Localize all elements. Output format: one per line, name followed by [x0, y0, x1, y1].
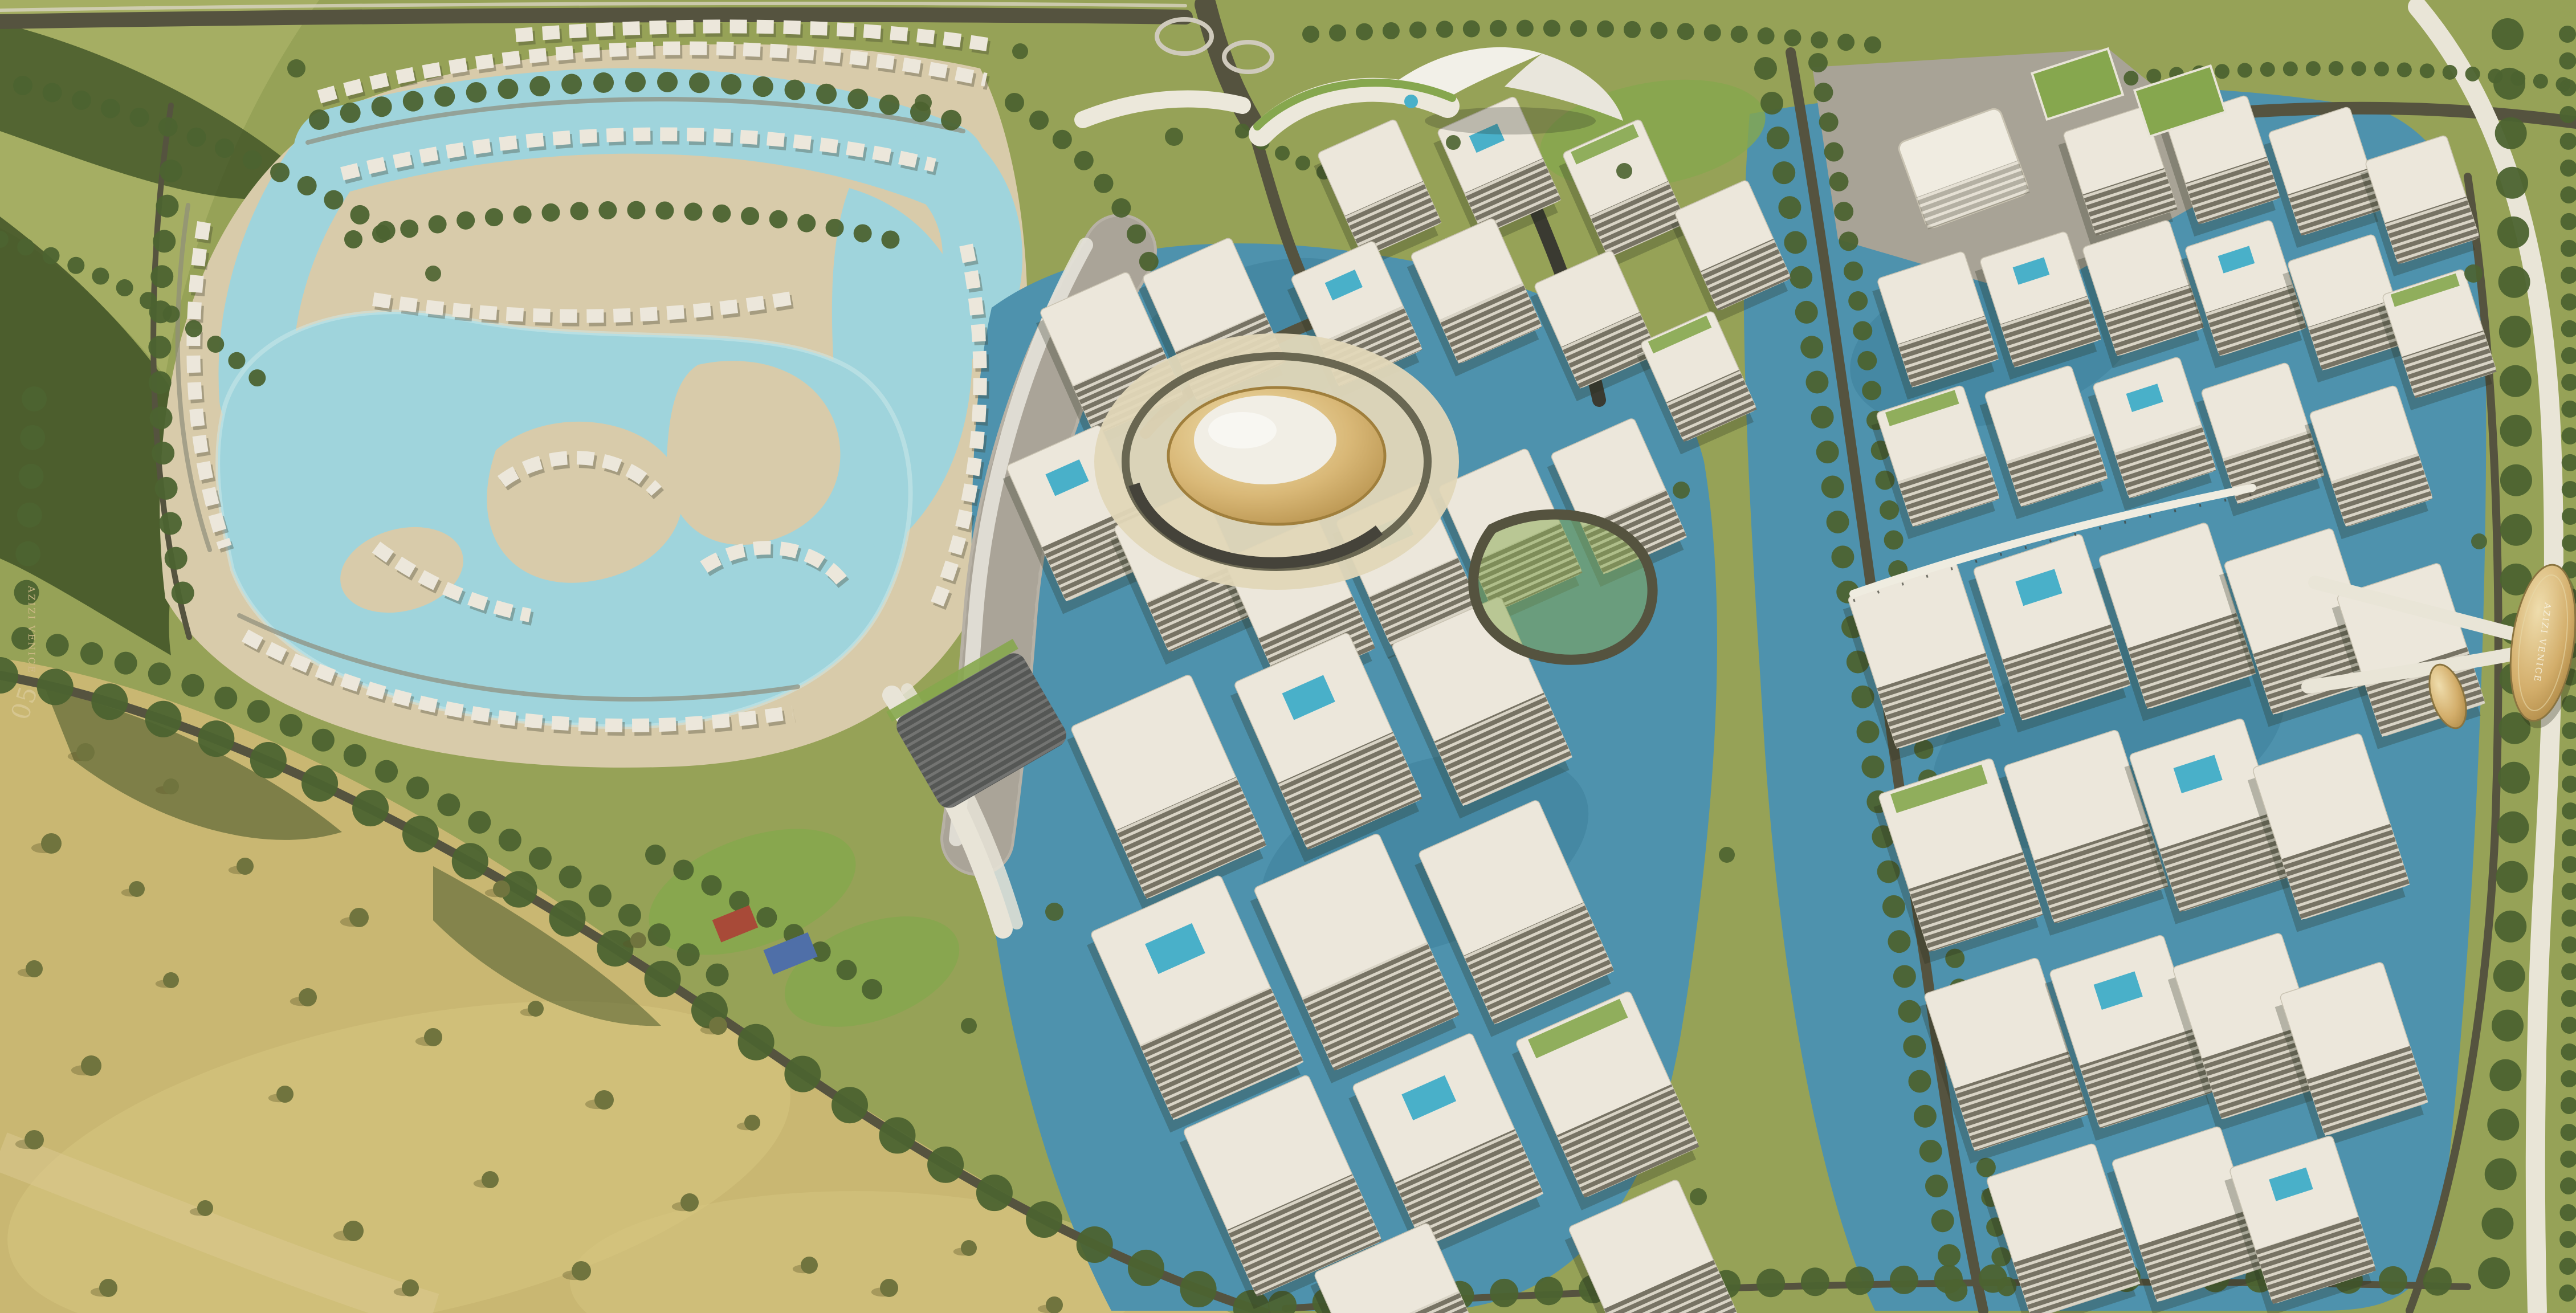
desert-tree-icon	[493, 880, 510, 898]
tree-icon	[1012, 43, 1028, 59]
desert-tree-icon	[594, 1090, 614, 1110]
desert-tree-icon	[163, 972, 179, 988]
desert-tree-icon	[76, 743, 95, 761]
desert-tree-icon	[276, 1086, 294, 1103]
desert-tree-icon	[402, 1279, 419, 1296]
desert-tree-icon	[961, 1240, 977, 1256]
tree-icon	[287, 59, 305, 78]
desert-tree-icon	[197, 1200, 213, 1216]
desert-tree-icon	[572, 1261, 591, 1281]
tree-icon	[1719, 847, 1735, 863]
desert-tree-icon	[25, 1130, 44, 1149]
desert-tree-icon	[163, 778, 179, 794]
desert-tree-icon	[424, 1028, 442, 1046]
dome-highlight	[1208, 412, 1277, 448]
tree-icon	[1616, 163, 1632, 179]
desert-tree-icon	[99, 1279, 117, 1297]
tree-icon	[2464, 264, 2483, 283]
desert-tree-icon	[41, 833, 62, 854]
opera-dome	[1094, 333, 1459, 590]
desert-tree-icon	[801, 1257, 818, 1274]
tree-icon	[425, 266, 441, 282]
desert-tree-icon	[709, 1017, 727, 1035]
tree-row	[26, 399, 34, 615]
tree-icon	[1446, 135, 1461, 150]
watermark-site-label: AZIZI VENICE	[26, 585, 37, 674]
crescent-roof-pool	[1404, 95, 1418, 108]
desert-tree-icon	[349, 908, 369, 927]
desert-tree-icon	[81, 1055, 101, 1076]
desert-tree-icon	[1046, 1296, 1063, 1313]
desert-tree-icon	[680, 1193, 699, 1212]
tree-icon	[1045, 903, 1063, 921]
desert-tree-icon	[630, 932, 646, 948]
tree-icon	[2471, 533, 2487, 549]
masterplan-scene: AZIZI VENICE AZIZI VENICE 05	[0, 0, 2576, 1313]
desert-tree-icon	[237, 858, 254, 875]
tree-icon	[961, 1018, 977, 1034]
desert-tree-icon	[482, 1171, 499, 1188]
tree-icon	[1690, 1188, 1707, 1205]
desert-tree-icon	[528, 1001, 544, 1017]
aerial-masterplan-rendering: AZIZI VENICE AZIZI VENICE 05	[0, 0, 2576, 1313]
desert-tree-icon	[880, 1279, 898, 1297]
tree-icon	[1165, 128, 1183, 146]
desert-tree-icon	[744, 1115, 760, 1131]
top-highway	[0, 15, 1185, 22]
desert-tree-icon	[343, 1221, 364, 1241]
tree-icon	[1673, 482, 1690, 499]
desert-tree-icon	[26, 960, 43, 977]
desert-tree-icon	[129, 881, 145, 897]
tree-icon	[915, 94, 932, 111]
desert-tree-icon	[299, 988, 317, 1006]
